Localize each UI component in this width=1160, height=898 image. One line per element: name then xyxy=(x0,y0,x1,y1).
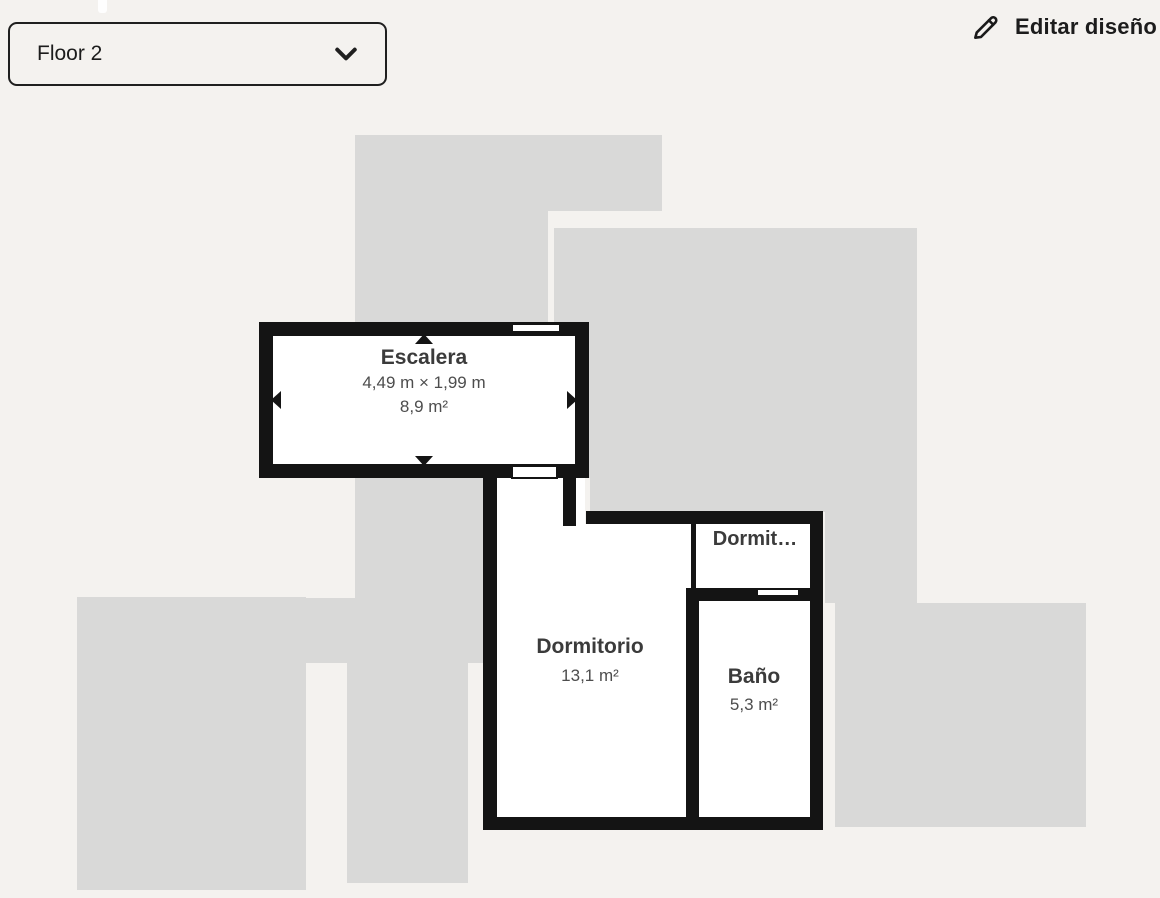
floor-plan-editor-screen: Floor 2 Editar diseño Es xyxy=(0,0,1160,898)
wall-segment xyxy=(563,478,576,526)
floor-silhouette xyxy=(590,478,917,512)
resize-handle-left-icon[interactable] xyxy=(271,391,281,409)
resize-handle-down-icon[interactable] xyxy=(415,456,433,466)
resize-handle-up-icon[interactable] xyxy=(415,334,433,344)
room-escalera-selected[interactable]: Escalera 4,49 m × 1,99 m 8,9 m² xyxy=(259,322,589,478)
wall-segment xyxy=(586,511,823,524)
room-escalera-content: Escalera 4,49 m × 1,99 m 8,9 m² xyxy=(273,336,575,464)
edit-layout-label: Editar diseño xyxy=(1015,14,1157,40)
floor-selector-dropdown[interactable]: Floor 2 xyxy=(8,22,387,86)
wall-segment xyxy=(483,464,497,830)
resize-handle-right-icon[interactable] xyxy=(567,391,577,409)
room-dimensions: 4,49 m × 1,99 m xyxy=(362,371,485,395)
room-name: Escalera xyxy=(362,345,485,371)
floor-silhouette xyxy=(835,603,1086,827)
floor-silhouette xyxy=(548,135,662,211)
floor-silhouette xyxy=(77,597,306,890)
wall-segment xyxy=(483,817,823,830)
room-dormitorio[interactable] xyxy=(497,478,585,817)
door-opening xyxy=(511,465,558,479)
floor-silhouette xyxy=(347,663,468,883)
wall-segment xyxy=(686,588,699,820)
room-area: 8,9 m² xyxy=(362,395,485,419)
window-marker xyxy=(512,324,560,332)
pencil-icon xyxy=(969,11,1002,44)
stray-highlight-mark xyxy=(98,0,107,13)
floor-silhouette xyxy=(306,598,480,663)
door-leaf xyxy=(691,524,696,590)
wall-segment xyxy=(810,511,823,830)
window-marker xyxy=(757,589,799,596)
floor-selector-value: Floor 2 xyxy=(37,42,331,66)
edit-layout-button[interactable]: Editar diseño xyxy=(969,7,1157,47)
floor-silhouette xyxy=(825,512,917,603)
floor-silhouette xyxy=(554,228,917,478)
chevron-down-icon xyxy=(331,39,361,69)
room-escalera-label: Escalera 4,49 m × 1,99 m 8,9 m² xyxy=(362,345,485,419)
